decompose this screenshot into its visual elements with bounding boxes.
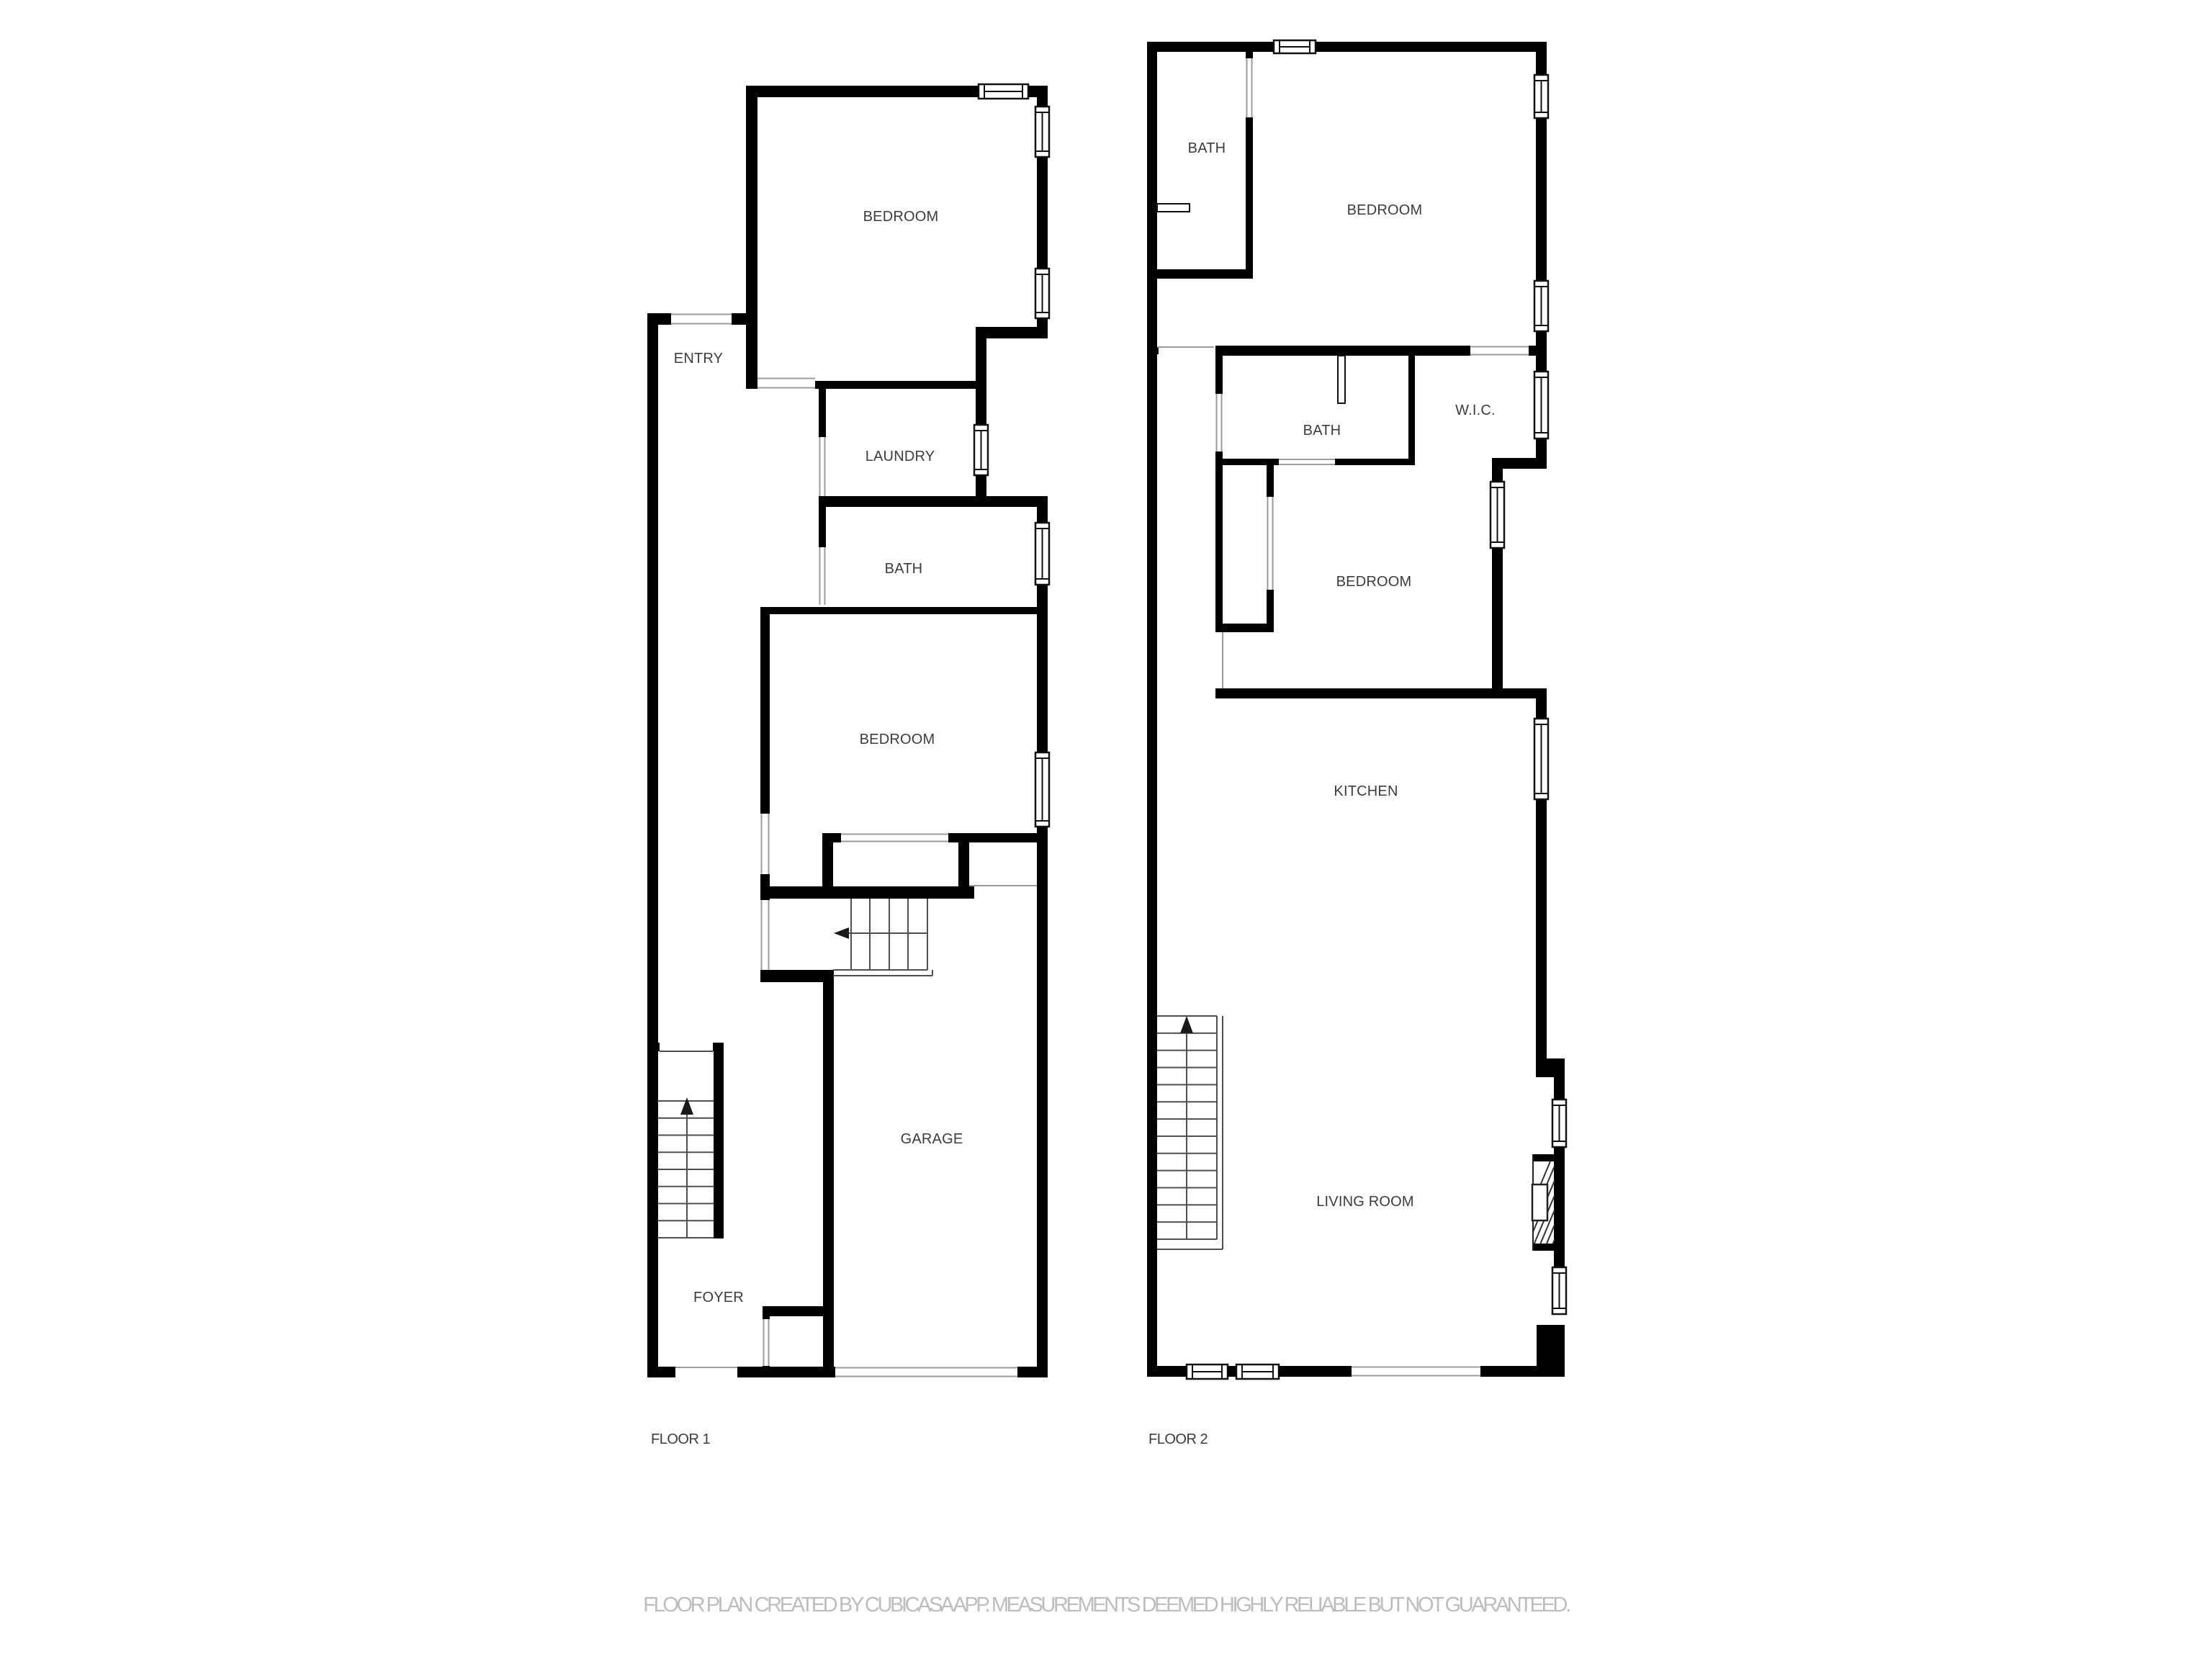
svg-text:BEDROOM: BEDROOM — [1347, 202, 1423, 218]
svg-text:BATH: BATH — [885, 561, 923, 577]
svg-text:BATH: BATH — [1303, 423, 1341, 439]
svg-text:BEDROOM: BEDROOM — [1336, 574, 1412, 590]
svg-text:BATH: BATH — [1188, 140, 1226, 156]
svg-text:FLOOR PLAN CREATED BY CUBICASA: FLOOR PLAN CREATED BY CUBICASA APP. MEAS… — [643, 1593, 1570, 1617]
svg-text:W.I.C.: W.I.C. — [1455, 403, 1496, 418]
svg-text:GARAGE: GARAGE — [901, 1131, 963, 1147]
svg-text:ENTRY: ENTRY — [674, 351, 723, 367]
svg-text:FLOOR 1: FLOOR 1 — [651, 1431, 710, 1447]
svg-text:BEDROOM: BEDROOM — [863, 209, 939, 225]
svg-text:KITCHEN: KITCHEN — [1334, 783, 1398, 799]
svg-text:BEDROOM: BEDROOM — [860, 732, 935, 747]
svg-text:LAUNDRY: LAUNDRY — [866, 449, 935, 464]
svg-text:FOYER: FOYER — [693, 1290, 744, 1305]
svg-text:FLOOR 2: FLOOR 2 — [1148, 1431, 1208, 1447]
svg-text:LIVING ROOM: LIVING ROOM — [1316, 1194, 1414, 1210]
